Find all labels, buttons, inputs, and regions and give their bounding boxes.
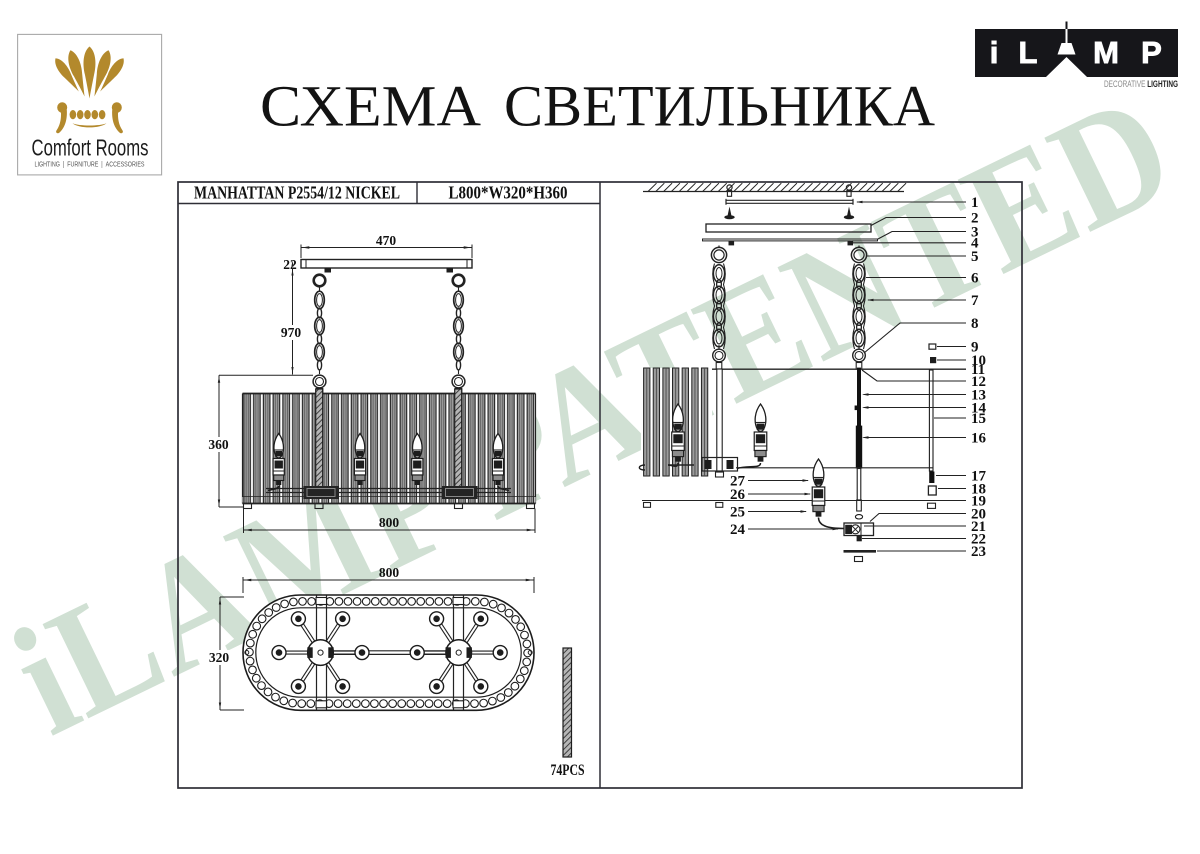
svg-text:360: 360	[208, 437, 229, 452]
svg-text:22: 22	[283, 257, 297, 272]
svg-text:7: 7	[971, 293, 979, 309]
svg-text:i: i	[990, 35, 999, 70]
svg-text:5: 5	[971, 249, 979, 265]
svg-text:8: 8	[971, 316, 979, 332]
svg-text:16: 16	[971, 431, 987, 447]
svg-text:6: 6	[971, 271, 979, 287]
svg-text:СХЕМА: СХЕМА	[260, 74, 481, 139]
svg-text:L800*W320*H360: L800*W320*H360	[449, 182, 568, 202]
svg-text:СВЕТИЛЬНИКА: СВЕТИЛЬНИКА	[504, 74, 935, 139]
svg-text:800: 800	[379, 565, 400, 580]
svg-text:970: 970	[281, 325, 302, 340]
svg-text:74PCS: 74PCS	[551, 762, 585, 779]
svg-text:L: L	[1019, 35, 1038, 70]
svg-text:320: 320	[209, 650, 230, 665]
svg-text:MANHATTAN P2554/12 NICKEL: MANHATTAN P2554/12 NICKEL	[194, 182, 400, 202]
svg-text:DECORATIVE LIGHTING: DECORATIVE LIGHTING	[1104, 79, 1178, 90]
svg-text:800: 800	[379, 515, 400, 530]
svg-text:Comfort Rooms: Comfort Rooms	[32, 135, 149, 161]
svg-text:25: 25	[730, 505, 745, 521]
svg-text:P: P	[1141, 35, 1162, 70]
svg-text:26: 26	[730, 487, 746, 503]
svg-text:1: 1	[971, 195, 979, 211]
svg-text:23: 23	[971, 544, 986, 560]
svg-text:15: 15	[971, 411, 986, 427]
svg-text:24: 24	[730, 522, 746, 538]
svg-text:M: M	[1093, 35, 1119, 70]
svg-text:LIGHTING | FURNITURE | ACC: LIGHTING | FURNITURE | ACCESSORIES	[35, 160, 145, 169]
svg-text:470: 470	[376, 233, 397, 248]
